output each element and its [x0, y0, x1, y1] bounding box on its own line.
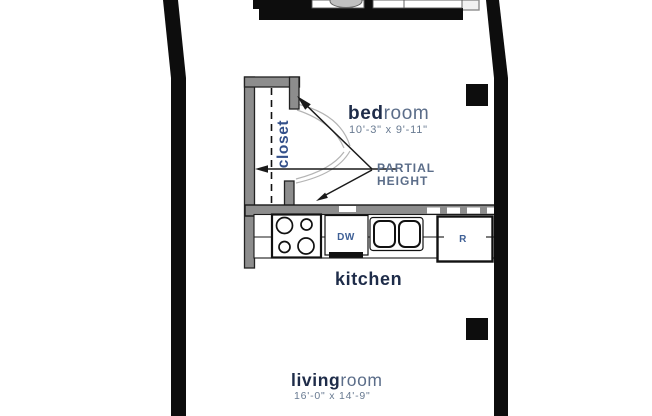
partial-height-annotation-line1: PARTIAL	[377, 161, 435, 175]
floor-plan: DW R	[0, 0, 652, 416]
burner	[301, 219, 312, 230]
left-wall-upper	[163, 0, 186, 78]
living-room-label-bold: living	[291, 370, 340, 390]
closet-door-swing	[296, 104, 350, 183]
burner	[298, 238, 314, 254]
kitchen-counter: DW R	[254, 215, 497, 262]
closet-left-wall	[245, 77, 255, 268]
bath-wall-block	[253, 0, 312, 9]
closet-label: closet	[275, 120, 292, 168]
bathroom-fixtures	[312, 0, 462, 9]
living-room-label: livingroom	[291, 370, 383, 390]
fixture-divider-wall	[365, 0, 374, 9]
refrigerator-label: R	[459, 234, 467, 245]
left-wall	[171, 78, 186, 416]
right-wall	[494, 78, 508, 416]
bedroom-label-light: room	[384, 103, 430, 124]
closet-return-wall	[290, 77, 300, 109]
arrowhead-left	[255, 165, 268, 173]
dishwasher-label: DW	[337, 232, 355, 243]
burner	[277, 218, 293, 234]
living-room-label-light: room	[340, 370, 382, 390]
living-room-dimensions: 16'-0" x 14'-9"	[294, 390, 371, 402]
kitchen-label: kitchen	[335, 269, 402, 289]
right-wall-upper	[486, 0, 508, 78]
refrigerator: R	[438, 217, 493, 262]
structural-column	[466, 84, 488, 106]
floor-plan-drawing: DW R	[0, 0, 652, 416]
dishwasher: DW	[325, 216, 368, 258]
stove-cooktop	[272, 215, 321, 258]
partial-height-annotation-line2: HEIGHT	[377, 174, 428, 188]
burner	[279, 242, 290, 253]
bedroom-label: bedroom	[348, 103, 429, 124]
bedroom-label-bold: bed	[348, 103, 384, 124]
arrowhead-down-left	[316, 193, 328, 201]
structural-column	[466, 318, 488, 340]
bedroom-dimensions: 10'-3" x 9'-11"	[349, 124, 428, 136]
closet-stub-wall	[285, 181, 295, 207]
bath-wall-bar	[259, 8, 463, 20]
double-sink	[370, 218, 423, 251]
